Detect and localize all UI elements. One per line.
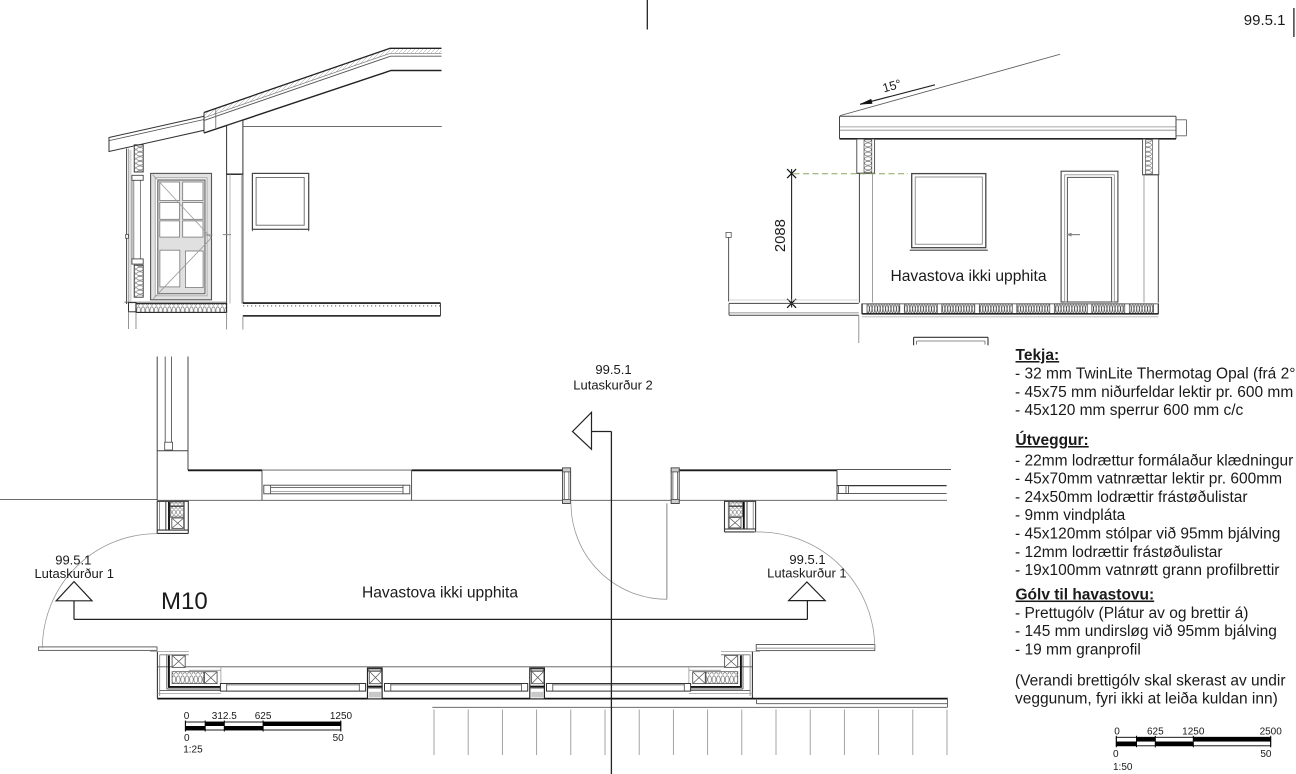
svg-text:625: 625 (255, 711, 272, 722)
svg-text:0: 0 (184, 711, 190, 722)
svg-text:312.5: 312.5 (212, 711, 237, 722)
svg-text:0: 0 (1113, 749, 1119, 760)
svg-text:- 45x75 mm niðurfeldar lektir: - 45x75 mm niðurfeldar lektir pr. 600 mm (1015, 384, 1293, 401)
svg-text:50: 50 (333, 733, 345, 744)
svg-text:1:25: 1:25 (183, 745, 203, 756)
svg-text:- Prettugólv (Plátur av og bre: - Prettugólv (Plátur av og brettir á) (1015, 605, 1248, 622)
svg-text:- 145 mm undirsløg við 95mm bj: - 145 mm undirsløg við 95mm bjálving (1015, 623, 1277, 640)
svg-text:1:50: 1:50 (1113, 762, 1133, 773)
svg-text:Lutaskurður 1: Lutaskurður 1 (34, 566, 114, 581)
svg-text:Útveggur:: Útveggur: (1016, 431, 1089, 449)
svg-text:99.5.1: 99.5.1 (595, 362, 631, 377)
svg-text:- 9mm vindpláta: - 9mm vindpláta (1015, 507, 1126, 524)
svg-text:Havastova ikki upphita: Havastova ikki upphita (362, 585, 518, 602)
svg-text:- 45x120 mm sperrur 600 mm c/c: - 45x120 mm sperrur 600 mm c/c (1015, 402, 1244, 419)
svg-text:- 45x120mm stólpar við 95mm bj: - 45x120mm stólpar við 95mm bjálving (1015, 526, 1280, 543)
svg-text:Lutaskurður 1: Lutaskurður 1 (767, 566, 847, 581)
svg-text:0: 0 (1114, 727, 1120, 738)
svg-text:veggunum, fyri ikki at leiða k: veggunum, fyri ikki at leiða kuldan inn) (1015, 691, 1278, 708)
svg-text:Lutaskurður 2: Lutaskurður 2 (573, 378, 653, 393)
svg-text:1250: 1250 (330, 711, 353, 722)
svg-text:- 22mm lodrættur formálaður kl: - 22mm lodrættur formálaður klædningur (1015, 452, 1293, 469)
svg-text:- 12mm lodrættir frástøðulista: - 12mm lodrættir frástøðulistar (1015, 544, 1223, 561)
svg-text:0: 0 (184, 733, 190, 744)
svg-text:15°: 15° (881, 77, 903, 96)
svg-text:- 24x50mm lodrættir frástøðuli: - 24x50mm lodrættir frástøðulistar (1015, 489, 1248, 506)
svg-text:- 19 mm granprofil: - 19 mm granprofil (1015, 641, 1141, 658)
svg-text:- 19x100mm vatnrøtt grann prof: - 19x100mm vatnrøtt grann profilbrettir (1015, 562, 1279, 579)
svg-text:Tekja:: Tekja: (1016, 347, 1060, 364)
svg-text:50: 50 (1260, 749, 1272, 760)
svg-text:M10: M10 (161, 588, 208, 615)
svg-text:Havastova ikki upphita: Havastova ikki upphita (891, 268, 1047, 285)
svg-text:- 32 mm TwinLite Thermotag Opa: - 32 mm TwinLite Thermotag Opal (frá 2° (1015, 366, 1295, 383)
svg-text:99.5.1: 99.5.1 (1244, 12, 1286, 29)
svg-text:2088: 2088 (773, 219, 789, 252)
svg-text:(Verandi brettigólv skal skera: (Verandi brettigólv skal skerast av undi… (1015, 672, 1286, 689)
svg-text:- 45x70mm vatnrættar lektir pr: - 45x70mm vatnrættar lektir pr. 600mm (1015, 471, 1282, 488)
svg-text:Gólv til havastovu:: Gólv til havastovu: (1016, 587, 1155, 604)
